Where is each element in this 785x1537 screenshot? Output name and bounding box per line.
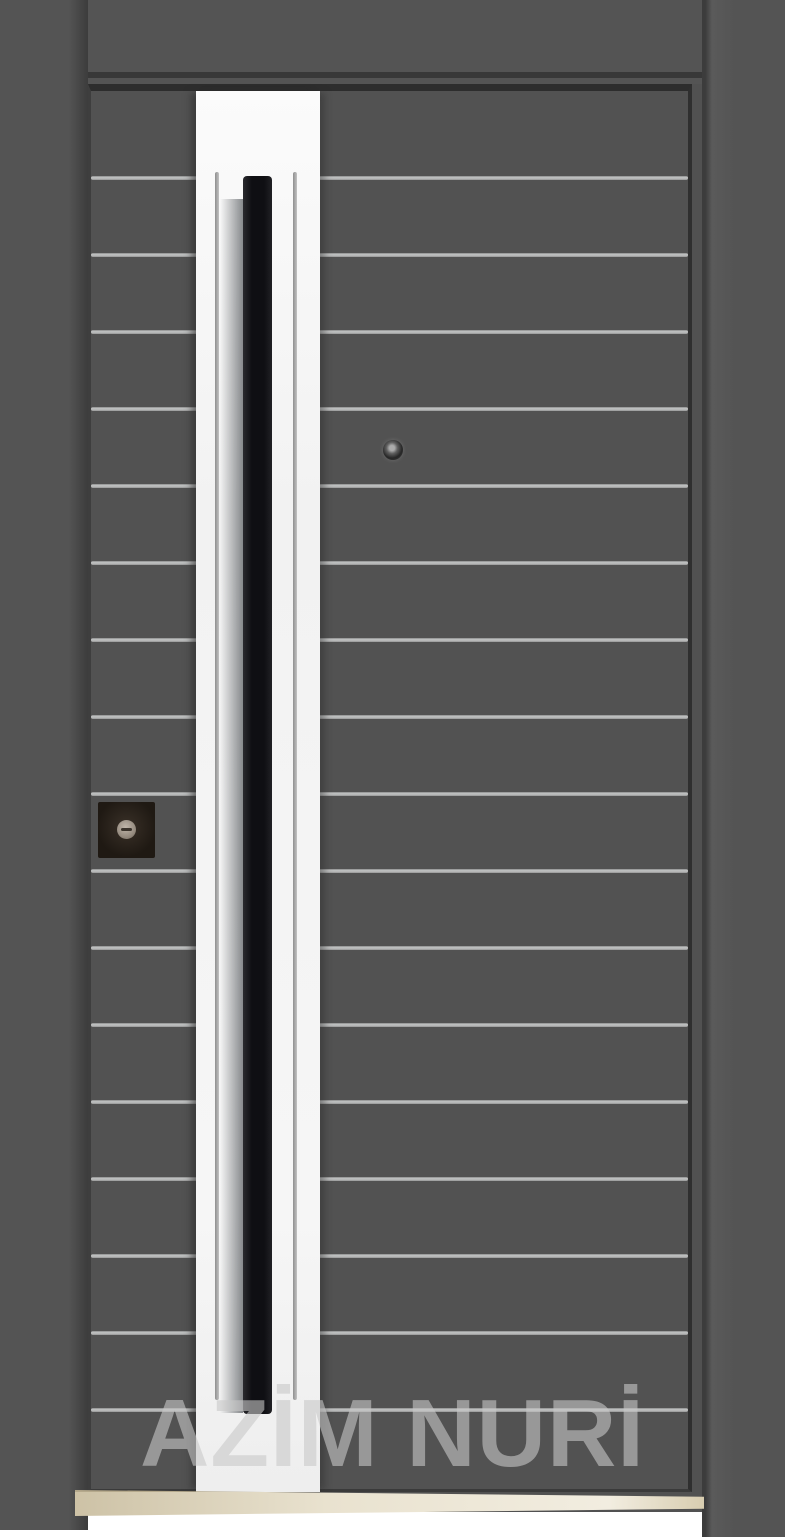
panel-groove-right — [293, 172, 297, 1400]
groove-line — [91, 1177, 688, 1181]
groove-line — [91, 176, 688, 180]
groove-line — [91, 253, 688, 257]
groove-line — [91, 792, 688, 796]
groove-line — [91, 484, 688, 488]
door-frame-right-jamb — [702, 0, 785, 1537]
groove-line — [91, 1254, 688, 1258]
groove-line — [91, 330, 688, 334]
handle-bar — [243, 176, 272, 1414]
groove-line — [91, 946, 688, 950]
groove-line — [91, 1023, 688, 1027]
groove-line — [91, 869, 688, 873]
keyhole-slit-icon — [121, 828, 132, 831]
peephole — [383, 440, 403, 460]
brand-watermark: AZİM NURİ — [0, 1384, 785, 1484]
lock-escutcheon — [98, 802, 155, 858]
handle-shadow — [220, 199, 243, 1413]
groove-line — [91, 561, 688, 565]
groove-line — [91, 407, 688, 411]
groove-line — [91, 1100, 688, 1104]
handle-panel — [196, 91, 320, 1492]
groove-line — [91, 1331, 688, 1335]
door-product-photo: AZİM NURİ — [0, 0, 785, 1537]
groove-lines — [91, 0, 688, 1537]
groove-line — [91, 715, 688, 719]
keyhole-knob — [117, 820, 136, 839]
panel-groove-left — [215, 172, 219, 1400]
groove-line — [91, 638, 688, 642]
door-frame-left-jamb — [0, 0, 88, 1530]
